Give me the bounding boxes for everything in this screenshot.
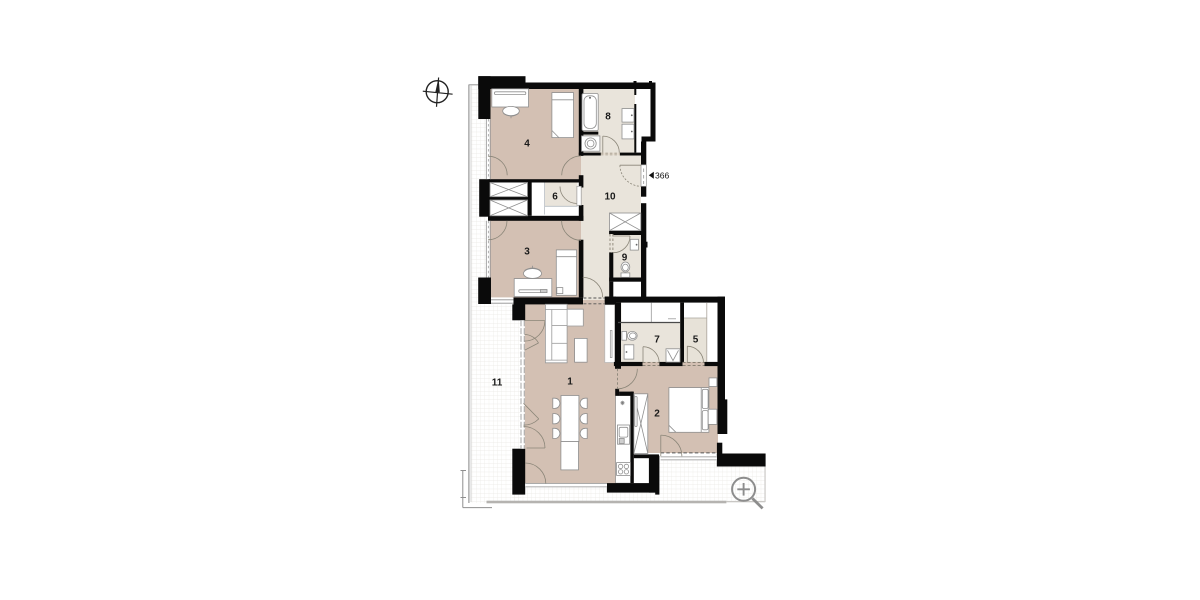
svg-text:5: 5	[693, 335, 699, 346]
svg-text:9: 9	[622, 253, 628, 264]
svg-text:11: 11	[492, 378, 503, 389]
svg-text:10: 10	[604, 192, 616, 203]
svg-text:8: 8	[605, 112, 611, 123]
svg-text:4: 4	[524, 139, 530, 150]
svg-text:366: 366	[655, 170, 670, 180]
svg-text:3: 3	[524, 247, 530, 258]
svg-text:2: 2	[654, 409, 660, 420]
svg-text:7: 7	[654, 335, 660, 346]
svg-text:6: 6	[552, 192, 558, 203]
svg-text:1: 1	[567, 377, 573, 388]
